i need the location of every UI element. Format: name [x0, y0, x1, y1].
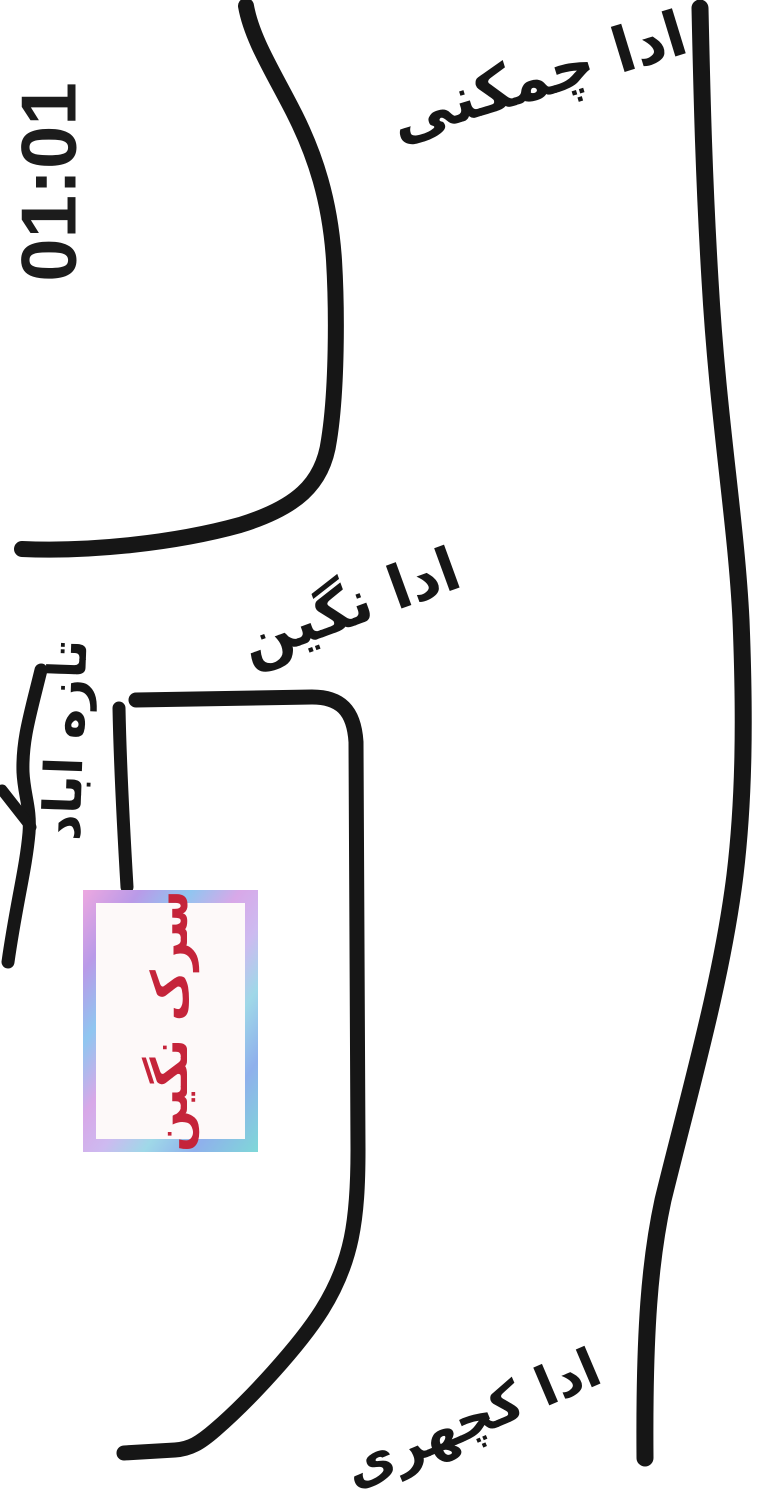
location-box-label: سرک نگین: [142, 890, 200, 1152]
location-box-inner: سرک نگین: [96, 903, 245, 1139]
highlighted-location-box: سرک نگین: [83, 890, 258, 1152]
road-right-main: [645, 8, 743, 1458]
road-box-access-lane: [119, 708, 127, 887]
hand-drawn-map: 01:01 ادا چمکنی ادا نگین تازه اباد ادا ک…: [0, 0, 766, 1500]
roads-layer: [0, 0, 766, 1500]
map-label-taza-abad: تازه اباد: [33, 638, 100, 841]
photo-timestamp: 01:01: [4, 82, 95, 282]
